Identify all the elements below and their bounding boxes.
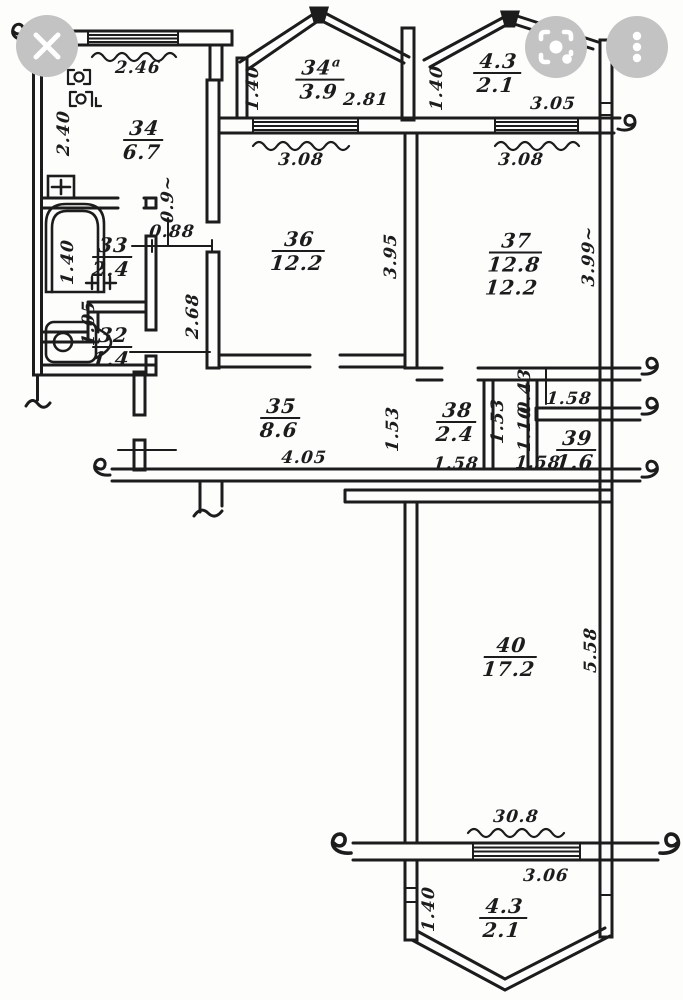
close-button[interactable] xyxy=(16,15,78,77)
floor-plan-viewer: 34a3.94.32.1346.7332.4321.43612.23712.81… xyxy=(0,0,683,1000)
window-hatch xyxy=(495,118,578,133)
bathtub-icon xyxy=(46,204,104,292)
camera-lens-icon xyxy=(534,25,578,69)
floor-plan-drawing xyxy=(0,0,683,1000)
kitchen-sink-icon xyxy=(48,176,74,198)
three-dot-menu-icon xyxy=(620,30,654,64)
dimension-lines xyxy=(130,218,212,352)
more-options-button[interactable] xyxy=(606,16,668,78)
walls xyxy=(13,8,679,990)
window-hatch xyxy=(88,31,178,45)
washbasin-icon xyxy=(86,277,116,289)
window-hatch xyxy=(253,118,358,133)
radiator-squiggles xyxy=(92,53,579,837)
electric-panel-icon xyxy=(68,70,101,106)
window-hatch xyxy=(473,843,580,860)
camera-search-button[interactable] xyxy=(525,16,587,78)
fixtures xyxy=(46,70,116,362)
close-icon xyxy=(30,29,64,63)
